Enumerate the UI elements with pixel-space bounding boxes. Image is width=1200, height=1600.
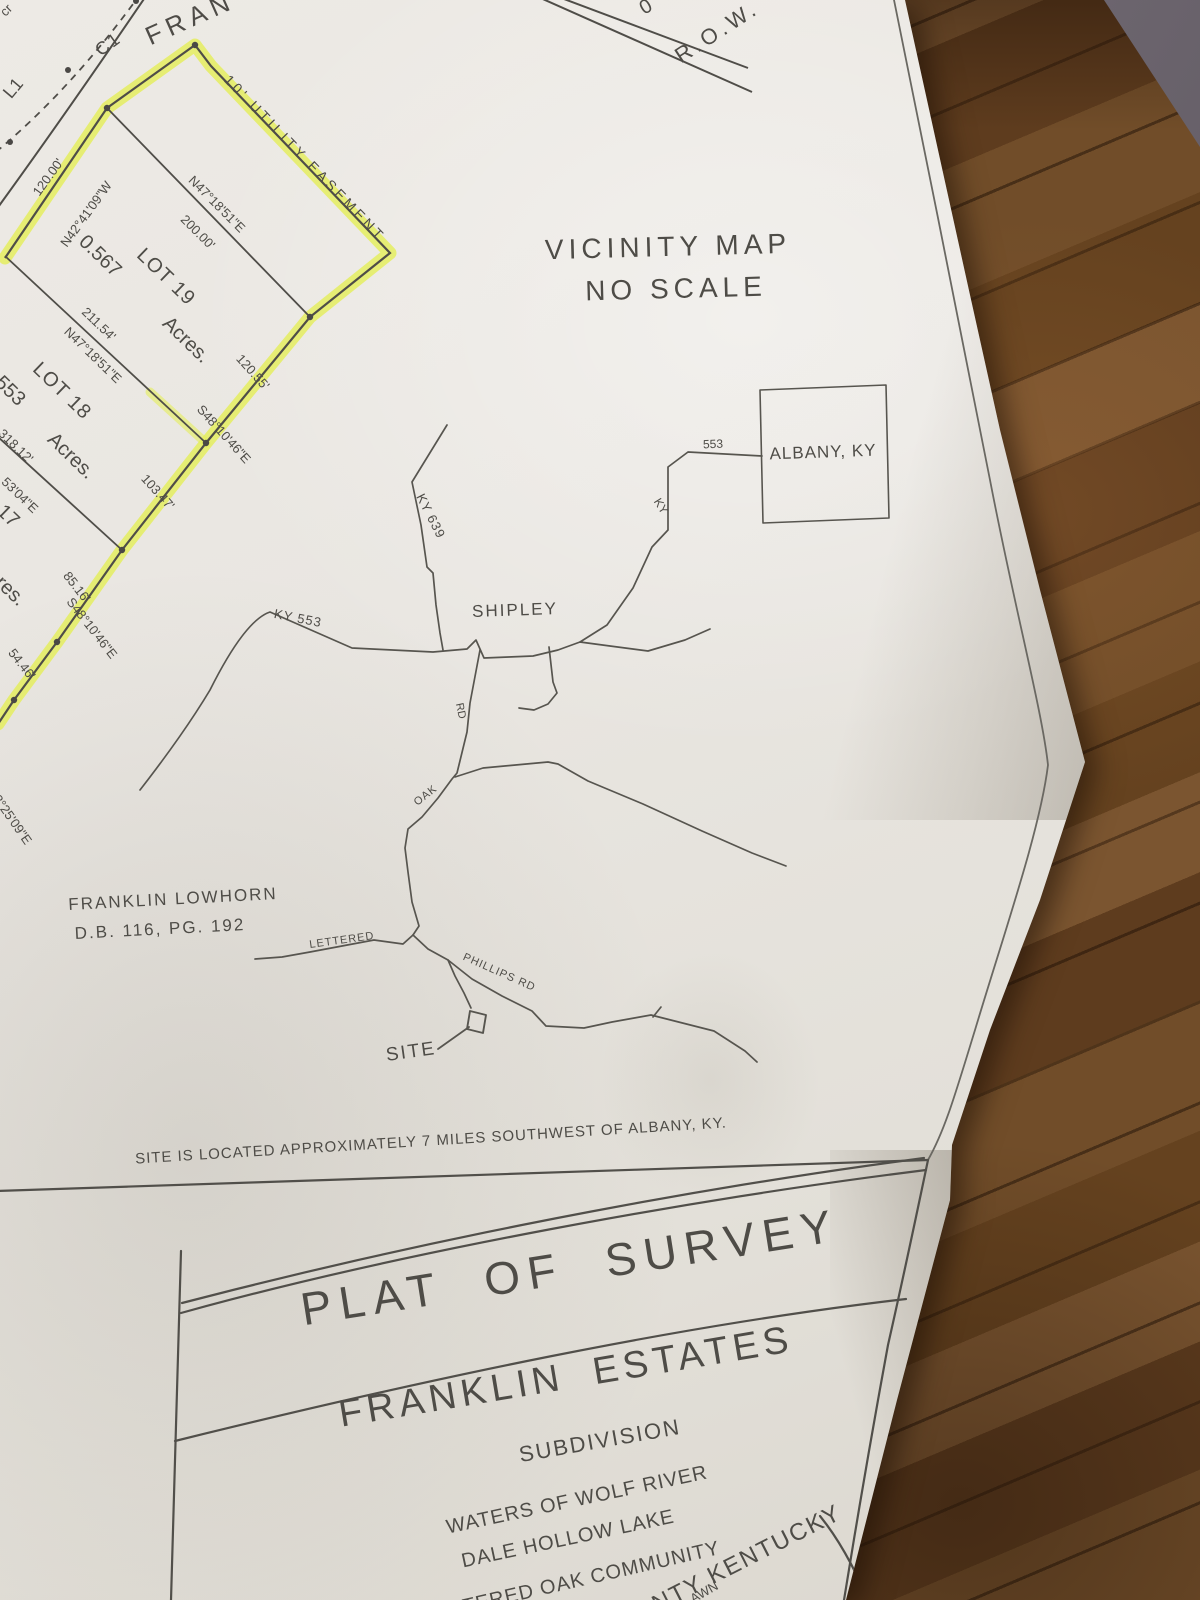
vicinity-road-lines — [140, 385, 889, 1062]
road-label-rd: RD — [453, 702, 467, 720]
road-label-553: 553 — [703, 438, 723, 451]
place-label-shipley: SHIPLEY — [472, 600, 558, 620]
vicinity-map-title: VICINITY MAP — [545, 230, 792, 264]
place-label-albany: ALBANY, KY — [769, 442, 877, 463]
site-marker — [467, 1011, 486, 1033]
vicinity-map-subtitle: NO SCALE — [585, 273, 767, 306]
site-arrow — [438, 1027, 469, 1049]
photographed-survey-plat: { "plat": { "corner_fragment": "cr", "ro… — [0, 0, 1200, 1600]
survey-plat-paper: cr C1 FRAN L1 0 R.O.W. 10' UTILITY EASEM… — [0, 0, 1200, 1600]
lot-corner-markers — [7, 0, 313, 703]
